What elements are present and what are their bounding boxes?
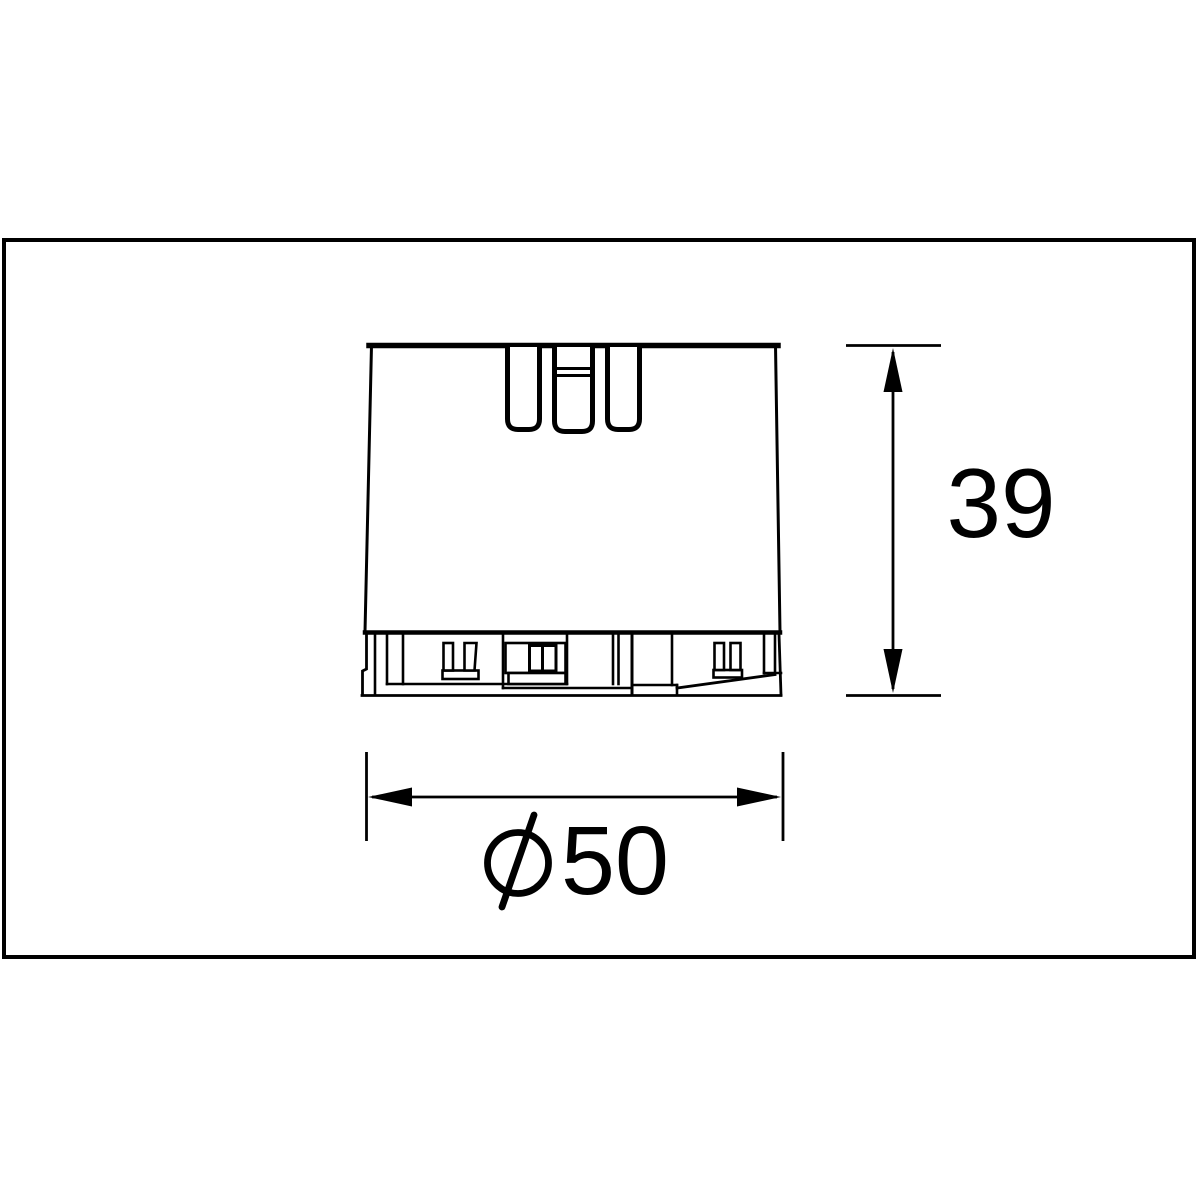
top-slot-right xyxy=(608,347,640,430)
center-contact-block xyxy=(506,643,566,684)
base-right-edge xyxy=(779,634,781,695)
diameter-dimension-label: 50 xyxy=(561,806,669,915)
top-slot-middle xyxy=(555,347,593,432)
body-top-slots xyxy=(508,347,640,432)
technical-drawing: 39 50 xyxy=(0,0,1200,1200)
drawing-canvas: 39 50 xyxy=(0,0,1200,1200)
height-dimension-label: 39 xyxy=(946,448,1055,558)
top-slot-left xyxy=(508,347,540,430)
